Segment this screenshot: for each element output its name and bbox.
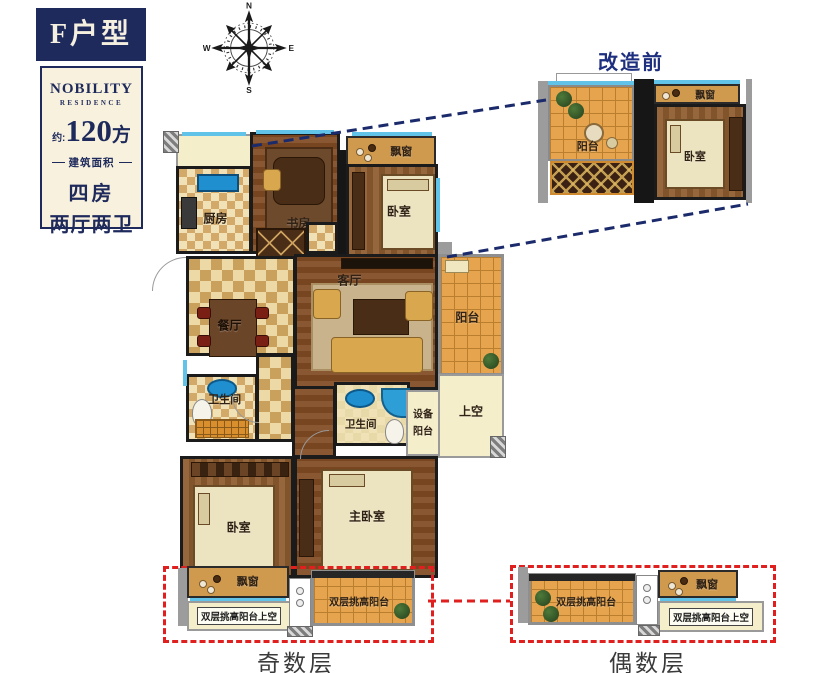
- roof-edge: [312, 571, 414, 578]
- wardrobe: [191, 462, 289, 477]
- fixture-dot: [296, 599, 304, 607]
- bay-window-odd: 飘窗: [187, 566, 289, 598]
- area-prefix: 约:: [52, 129, 65, 144]
- balcony-bench: [445, 260, 469, 273]
- master-bedroom-label: 主卧室: [349, 508, 385, 525]
- plant-icon: [394, 603, 410, 619]
- unit-type-badge: F户型: [36, 8, 146, 61]
- inset-balcony-label: 阳台: [577, 138, 599, 154]
- inset-bedroom: 卧室: [654, 104, 746, 200]
- brand-card: NOBILITY RESIDENCE 约: 120 方 建筑面积 四房 两厅两卫: [40, 66, 143, 229]
- bay-window-top-label: 飘窗: [390, 143, 412, 159]
- room-living: 客厅: [294, 254, 438, 390]
- pillow: [387, 179, 429, 191]
- chair: [606, 137, 618, 149]
- window: [182, 132, 246, 136]
- pillow: [329, 474, 365, 487]
- desk-chair: [263, 169, 281, 191]
- decor-dot: [199, 580, 207, 588]
- dh-balcony-odd-label: 双层挑高阳台: [329, 594, 389, 609]
- compass-north-label: N: [246, 2, 252, 10]
- hatched-wall: [163, 131, 179, 153]
- inset-bay-window: 飘窗: [654, 84, 740, 104]
- room-kitchen: 厨房: [176, 166, 252, 254]
- kitchen-sink: [197, 174, 239, 192]
- armchair: [313, 289, 341, 319]
- bath-mat: [195, 419, 249, 438]
- area-unit: 方: [112, 120, 131, 147]
- bay-window-even: 飘窗: [658, 570, 738, 598]
- area-row: 约: 120 方: [42, 116, 141, 147]
- bath-mid-label: 卫生间: [345, 417, 377, 432]
- layout-line-2: 两厅两卫: [42, 208, 141, 237]
- sofa-furniture: [331, 337, 423, 373]
- bedroom-left-label: 卧室: [227, 519, 251, 536]
- plant-icon: [535, 590, 551, 606]
- inset-balcony: 阳台: [548, 85, 634, 161]
- area-label-row: 建筑面积: [42, 155, 141, 170]
- kitchen-label: 厨房: [203, 210, 227, 227]
- dh-balcony-even: 双层挑高阳台: [528, 573, 636, 625]
- hatched-wall: [638, 625, 660, 636]
- odd-floor-label: 奇数层: [257, 644, 335, 673]
- wall-segment: [746, 79, 752, 203]
- room-bedroom-left: 卧室: [180, 456, 294, 578]
- inset-bay-window-label: 飘窗: [695, 86, 715, 101]
- planter-strip: [550, 161, 634, 195]
- inset-bedroom-label: 卧室: [684, 148, 706, 164]
- toilet: [385, 419, 404, 444]
- roof-edge: [529, 574, 635, 581]
- decor-dot: [356, 148, 364, 156]
- void-odd: 双层挑高阳台上空: [187, 601, 291, 631]
- equip-balcony-label-2: 阳台: [413, 423, 433, 438]
- decor-dot: [213, 575, 221, 583]
- hall-tile: [306, 222, 338, 254]
- decor-dot: [368, 144, 376, 152]
- void-odd-label: 双层挑高阳台上空: [197, 607, 281, 625]
- fixture-dot: [643, 596, 651, 604]
- brand-subtitle: RESIDENCE: [42, 99, 141, 107]
- compass-icon: N S E W: [203, 2, 295, 94]
- wall-segment: [634, 79, 654, 203]
- decor-dot: [672, 89, 680, 97]
- fixture-dot: [643, 584, 651, 592]
- void-even: 双层挑高阳台上空: [658, 601, 764, 632]
- hall-corridor: [256, 354, 294, 442]
- bedroom-top-label: 卧室: [387, 203, 411, 220]
- compass-east-label: E: [289, 44, 295, 53]
- chair: [197, 307, 211, 319]
- pillow: [198, 493, 210, 525]
- plant-icon: [483, 353, 499, 369]
- pillow: [670, 125, 681, 153]
- window: [436, 178, 440, 232]
- room-master-bedroom: 主卧室: [294, 456, 438, 578]
- room-bath-mid: 卫生间: [334, 382, 410, 446]
- room-equip-balcony: 设备 阳台: [406, 390, 440, 456]
- room-balcony-right: 阳台: [438, 254, 504, 376]
- compass-west-label: W: [203, 44, 211, 53]
- tv-cabinet: [341, 258, 433, 269]
- bed-furniture: 卧室: [193, 485, 275, 569]
- armchair: [405, 291, 433, 321]
- dh-balcony-odd: 双层挑高阳台: [311, 570, 415, 626]
- inset-link-line-bottom: [447, 204, 748, 257]
- window: [352, 132, 432, 136]
- plant-icon: [568, 103, 584, 119]
- coffee-table: [353, 299, 409, 335]
- room-dining: 餐厅: [186, 256, 296, 356]
- decor-dot: [662, 92, 670, 100]
- divider-dash: [52, 162, 65, 163]
- wall-segment: [538, 81, 548, 203]
- entry-door-arc: [152, 257, 186, 291]
- wardrobe: [352, 172, 365, 250]
- stove: [181, 197, 197, 229]
- decor-dot: [680, 577, 688, 585]
- decor-dot: [364, 154, 372, 162]
- fixture-column: [636, 575, 658, 625]
- bed-furniture: 主卧室: [321, 469, 413, 571]
- fixture-column: [289, 578, 311, 628]
- chair: [255, 307, 269, 319]
- chair: [255, 335, 269, 347]
- void-right-label: 上空: [459, 403, 483, 420]
- bay-window-even-label: 飘窗: [696, 576, 718, 592]
- bay-window-top: 飘窗: [346, 136, 436, 166]
- chair: [197, 335, 211, 347]
- room-mini-balcony: [176, 134, 252, 168]
- wardrobe: [299, 479, 314, 557]
- living-label: 客厅: [337, 272, 361, 289]
- inset-plan: 阳台 飘窗 卧室: [538, 71, 753, 211]
- even-floor-label: 偶数层: [609, 644, 687, 673]
- wardrobe: [729, 117, 743, 191]
- area-label: 建筑面积: [69, 155, 115, 170]
- layout-line-1: 四房: [42, 177, 141, 206]
- dining-label: 餐厅: [218, 316, 242, 333]
- room-bedroom-top: 卧室: [346, 164, 438, 258]
- dh-balcony-even-label: 双层挑高阳台: [556, 593, 616, 608]
- brand-name: NOBILITY: [42, 81, 141, 98]
- compass-south-label: S: [246, 86, 252, 94]
- hatched-wall: [287, 626, 313, 637]
- window: [183, 360, 187, 386]
- wall-segment: [438, 242, 452, 254]
- bay-window-odd-label: 飘窗: [237, 573, 259, 589]
- divider-dash: [119, 162, 132, 163]
- window: [256, 130, 334, 134]
- void-even-label: 双层挑高阳台上空: [669, 608, 753, 626]
- fixture-dot: [296, 587, 304, 595]
- bath-sink: [345, 389, 375, 408]
- balcony-label: 阳台: [455, 309, 479, 326]
- plant-icon: [543, 606, 559, 622]
- area-value: 120: [65, 116, 112, 146]
- hatched-wall: [490, 436, 506, 458]
- equip-balcony-label-1: 设备: [413, 406, 433, 421]
- decor-dot: [207, 586, 215, 594]
- floorplan-page: F户型 NOBILITY RESIDENCE 约: 120 方 建筑面积 四房 …: [0, 0, 827, 673]
- decor-dot: [675, 588, 683, 596]
- wall-segment: [518, 567, 528, 623]
